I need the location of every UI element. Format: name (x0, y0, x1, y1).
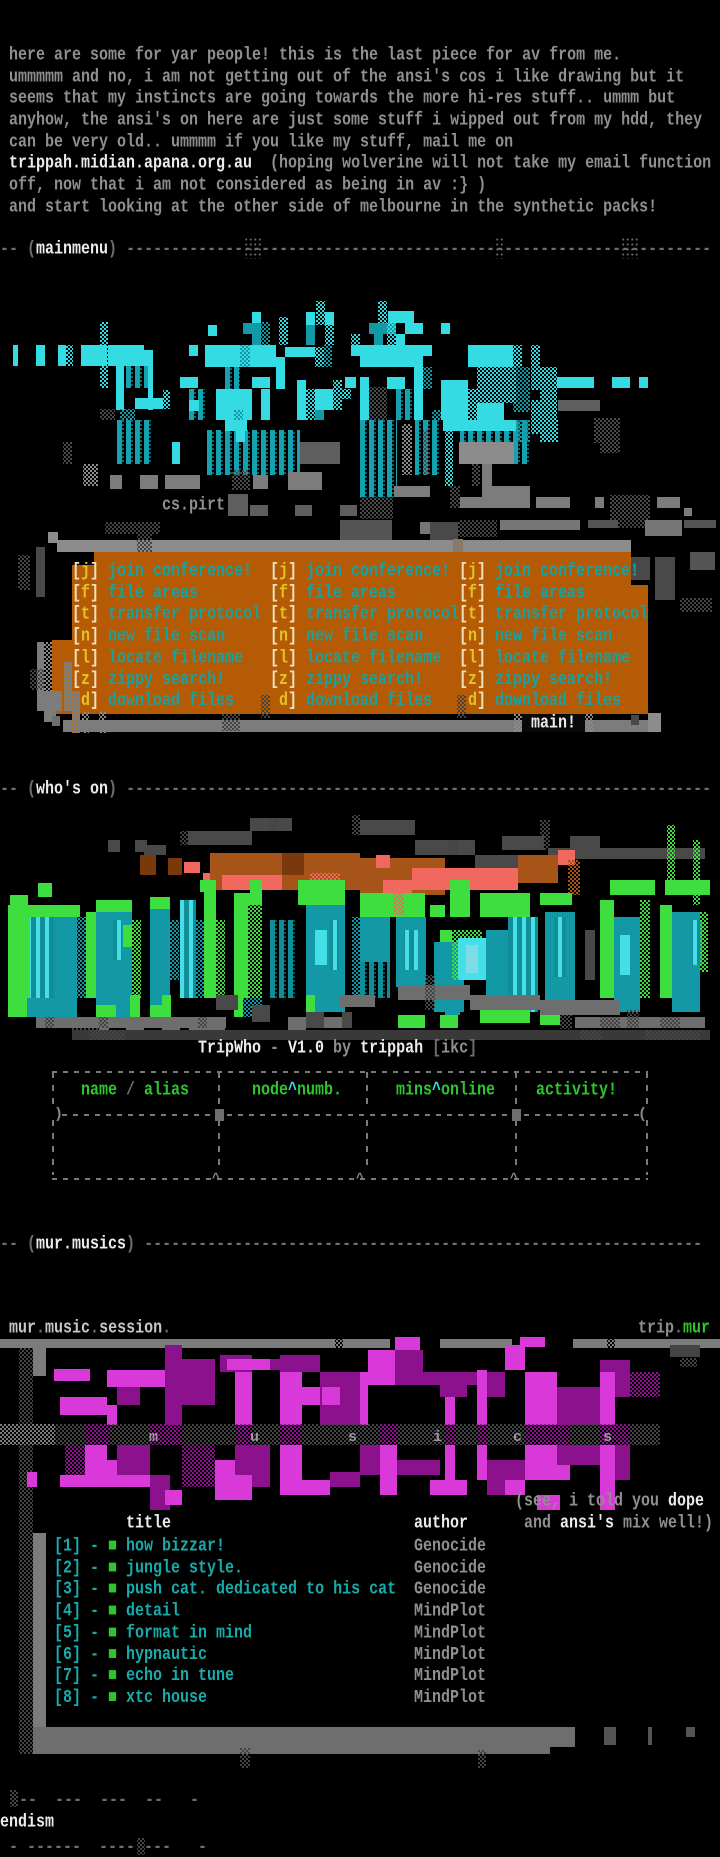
svg-text:s: s (603, 1429, 612, 1446)
svg-text:c: c (513, 1429, 522, 1446)
svg-text:(: ( (638, 1106, 647, 1123)
svg-text:m: m (149, 1429, 158, 1446)
svg-text:^: ^ (510, 1171, 518, 1186)
svg-text:u: u (250, 1429, 259, 1446)
svg-text:i: i (433, 1429, 442, 1446)
svg-text:^: ^ (212, 1171, 220, 1186)
svg-text:^: ^ (356, 1171, 364, 1186)
svg-text:s: s (348, 1429, 357, 1446)
svg-text:): ) (54, 1106, 63, 1123)
